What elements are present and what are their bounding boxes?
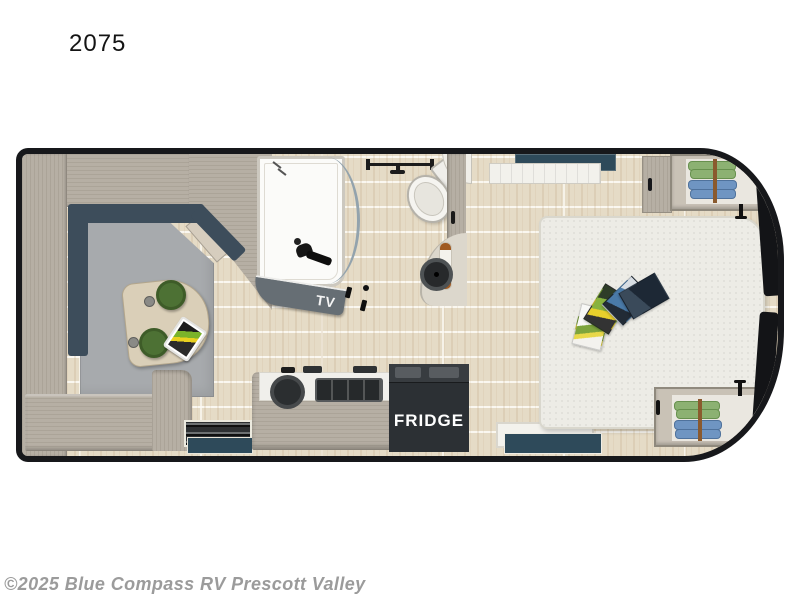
door-handle-icon: [451, 211, 455, 224]
window-bottom: [504, 433, 602, 454]
wardrobe-rear-bottom: [654, 387, 764, 447]
cooktop-knob-icon: [303, 366, 322, 373]
table-item: [144, 296, 155, 307]
bathroom-sink: [420, 258, 453, 291]
wardrobe-interior: [672, 395, 758, 441]
floorplan-outline: TV FRIDGE: [16, 148, 784, 462]
fridge: FRIDGE: [389, 364, 469, 452]
sofa-backrest-left: [68, 204, 88, 356]
towel-rack-icon: [366, 158, 434, 175]
dinette-stool: [156, 280, 186, 310]
model-number: 2075: [69, 30, 126, 58]
towel-bar-foot: [390, 170, 405, 174]
fridge-vent: [429, 367, 459, 378]
coat-hook-icon: [733, 379, 747, 396]
cooktop-knob-icon: [353, 366, 377, 373]
hanger-rod: [713, 159, 717, 203]
sink-drain-icon: [434, 272, 439, 277]
fridge-vent: [395, 367, 421, 378]
cabinet-handle-icon: [648, 178, 652, 191]
fridge-label: FRIDGE: [394, 411, 464, 431]
ceiling-vent: [489, 163, 601, 184]
hanger-rod: [698, 399, 702, 441]
table-item: [128, 337, 139, 348]
towel-bar: [366, 163, 434, 166]
magazines-on-bed: [574, 272, 658, 356]
coat-hook-icon: [734, 204, 748, 221]
sofa-backrest-top: [73, 204, 204, 223]
cabinet-handle-icon: [656, 400, 660, 415]
door-stop-icon: [363, 285, 369, 291]
tv-label: TV: [315, 291, 337, 310]
kitchen-faucet-icon: [281, 367, 295, 373]
nightstand-cabinet: [642, 156, 672, 213]
entry-door-step: [187, 437, 253, 454]
kitchen-sink: [270, 375, 305, 409]
toilet-seat: [408, 176, 451, 221]
cooktop: [315, 378, 383, 402]
floorplan-page: 2075 TV: [0, 0, 800, 600]
watermark: ©2025 Blue Compass RV Prescott Valley: [4, 574, 366, 595]
towel-bar-bracket: [366, 159, 370, 170]
